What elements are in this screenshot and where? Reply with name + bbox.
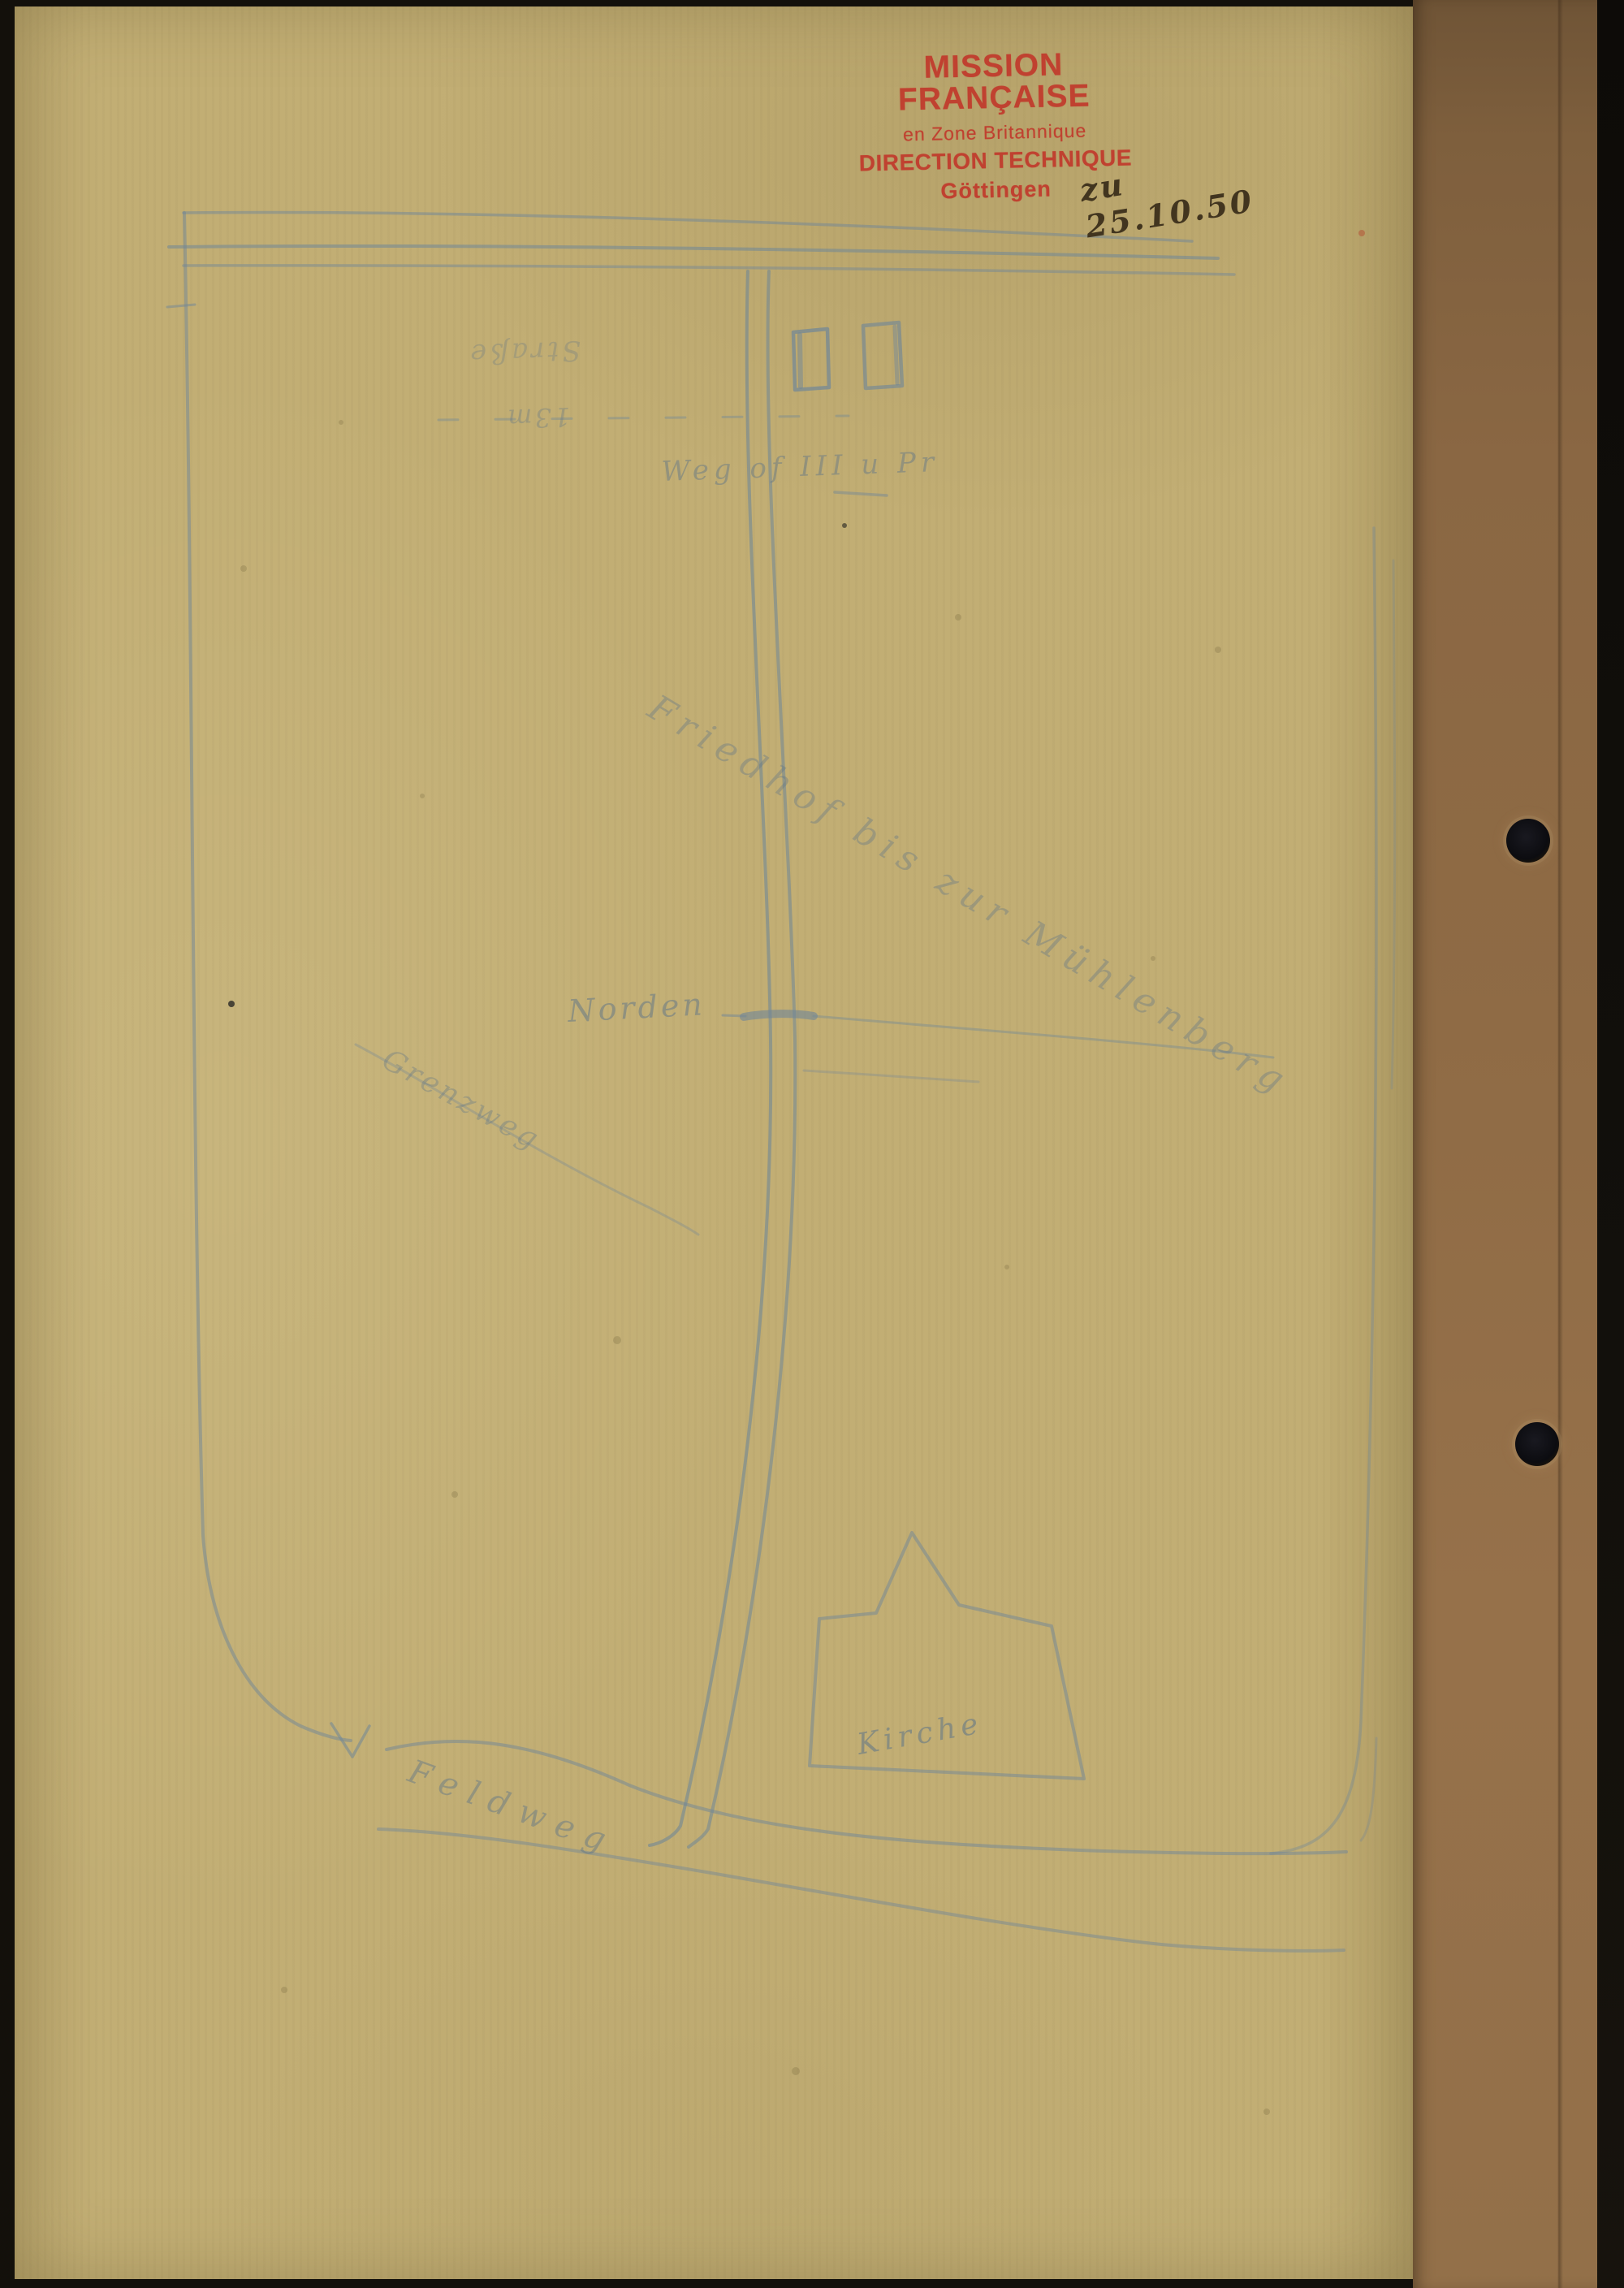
building-2-inner-edge	[895, 327, 897, 383]
ink-dot	[228, 1001, 235, 1007]
paper-speck	[1263, 2109, 1270, 2115]
punch-hole-top	[1506, 819, 1550, 863]
label-hill-name: Grenzweg	[377, 1043, 546, 1157]
annotation-underline	[835, 492, 887, 495]
ink-speck	[842, 523, 847, 528]
main-road-right-line	[689, 271, 795, 1847]
paper-speck	[420, 794, 425, 798]
paper-speck	[240, 565, 247, 572]
paper-speck	[451, 1491, 458, 1498]
top-road-lower-line	[184, 266, 1234, 275]
scanned-archive-page: { "stamp": { "line1": "MISSION FRANÇAISE…	[0, 0, 1624, 2288]
north-pointer-line-2	[804, 1070, 978, 1082]
bottom-road-lower-line	[378, 1829, 1344, 1951]
top-road-upper-line	[169, 246, 1218, 258]
paper-speck	[792, 2067, 800, 2075]
dashed-measure-line	[438, 416, 849, 420]
north-pointer-arrow	[744, 1014, 814, 1017]
top-border-line	[184, 212, 1192, 241]
right-border-line	[1271, 528, 1376, 1853]
label-street-width: 13m	[505, 401, 571, 435]
main-road-left-line	[650, 271, 771, 1845]
label-church: Kirche	[853, 1706, 985, 1762]
paper-speck	[955, 614, 961, 621]
scan-edge-right	[1597, 0, 1624, 2288]
building-1-inner-edge	[800, 335, 801, 387]
cardboard-binding-strip	[1413, 0, 1597, 2288]
pencil-sketch: Straße 13m Weg of III u Pr Friedhof bis …	[0, 0, 1624, 2288]
label-annotation-top: Weg of III u Pr	[661, 446, 939, 488]
punch-hole-bottom	[1515, 1422, 1559, 1466]
stamp-line-2: en Zone Britannique	[824, 120, 1165, 146]
stamp-line-1: MISSION FRANÇAISE	[823, 47, 1165, 118]
right-border-line-3	[1361, 1738, 1376, 1840]
paper-speck	[1215, 647, 1221, 653]
label-street-top: Straße	[466, 334, 581, 370]
paper-speck	[1151, 956, 1155, 961]
paper-speck	[339, 420, 343, 425]
red-speck	[1358, 230, 1365, 236]
paper-speck	[613, 1336, 621, 1344]
left-border-tick	[167, 305, 195, 307]
label-diagonal-road: Friedhof bis zur Mühlenberg	[640, 686, 1298, 1105]
right-border-line-2	[1392, 560, 1395, 1088]
paper-speck	[281, 1987, 287, 1993]
left-border-line	[184, 213, 351, 1741]
label-direction-north: Norden	[566, 986, 706, 1029]
paper-speck	[1004, 1265, 1009, 1269]
